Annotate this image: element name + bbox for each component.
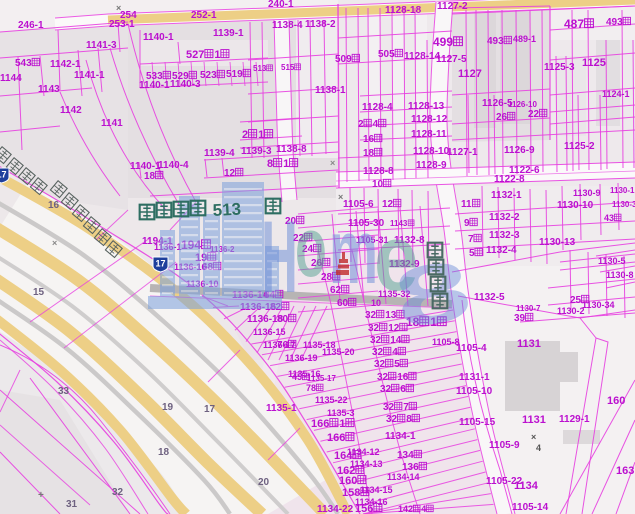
svg-text:1130-34: 1130-34 — [582, 300, 615, 310]
svg-text:1122-8: 1122-8 — [494, 174, 525, 185]
svg-text:1128-12: 1128-12 — [411, 114, 448, 125]
svg-text:1134-15: 1134-15 — [360, 485, 393, 495]
svg-text:7: 7 — [468, 234, 474, 245]
svg-text:1126-10: 1126-10 — [508, 100, 537, 109]
svg-text:1138-2: 1138-2 — [305, 19, 336, 30]
svg-text:1139-1: 1139-1 — [213, 28, 244, 39]
svg-text:39: 39 — [514, 313, 526, 324]
svg-text:32: 32 — [380, 384, 392, 395]
svg-text:26: 26 — [496, 112, 508, 123]
svg-text:25: 25 — [570, 295, 582, 306]
svg-text:1130-2: 1130-2 — [557, 306, 585, 316]
svg-text:1132-3: 1132-3 — [489, 230, 520, 241]
svg-text:1125-3: 1125-3 — [544, 62, 575, 73]
svg-text:1125-2: 1125-2 — [564, 141, 595, 152]
svg-text:1130-13: 1130-13 — [539, 237, 576, 248]
svg-text:1130-7: 1130-7 — [516, 304, 541, 313]
svg-text:1132-2: 1132-2 — [489, 212, 520, 223]
svg-text:487: 487 — [564, 17, 584, 31]
svg-text:31: 31 — [66, 499, 78, 510]
svg-text:513: 513 — [253, 64, 267, 73]
svg-text:1143: 1143 — [38, 84, 60, 95]
svg-text:19: 19 — [162, 402, 174, 413]
svg-text:1130-1: 1130-1 — [610, 186, 635, 195]
svg-text:1127-2: 1127-2 — [437, 1, 468, 12]
svg-text:1128-11: 1128-11 — [411, 129, 447, 140]
svg-text:1141-1: 1141-1 — [74, 70, 105, 81]
svg-text:1140-3: 1140-3 — [170, 79, 201, 90]
svg-text:32: 32 — [365, 310, 377, 321]
svg-text:1144: 1144 — [0, 73, 22, 84]
svg-text:1132-4: 1132-4 — [486, 245, 517, 256]
svg-text:499: 499 — [433, 35, 453, 49]
svg-text:523: 523 — [200, 70, 217, 81]
svg-text:527: 527 — [186, 49, 204, 61]
svg-text:1130-3: 1130-3 — [612, 200, 635, 209]
svg-text:163: 163 — [616, 465, 634, 477]
svg-text:32: 32 — [377, 372, 389, 383]
svg-text:253-1: 253-1 — [109, 19, 135, 30]
svg-text:1139-3: 1139-3 — [241, 146, 272, 157]
svg-text:1127-1: 1127-1 — [447, 147, 478, 158]
svg-text:16: 16 — [363, 134, 375, 145]
svg-text:45: 45 — [292, 372, 302, 382]
svg-text:9: 9 — [464, 218, 470, 229]
svg-text:4: 4 — [373, 119, 379, 130]
svg-text:5: 5 — [469, 248, 475, 259]
svg-text:18: 18 — [158, 447, 170, 458]
svg-text:1105-4: 1105-4 — [456, 343, 487, 354]
svg-text:1138-8: 1138-8 — [276, 144, 307, 155]
svg-text:18: 18 — [144, 171, 156, 182]
svg-text:252-1: 252-1 — [191, 10, 217, 21]
svg-text:32: 32 — [374, 359, 386, 370]
svg-text:1136-19: 1136-19 — [285, 353, 318, 363]
svg-text:1105-9: 1105-9 — [489, 440, 520, 451]
svg-text:1134-22: 1134-22 — [317, 504, 354, 514]
svg-text:17: 17 — [204, 404, 216, 415]
svg-text:17: 17 — [155, 258, 165, 268]
svg-text:246-1: 246-1 — [18, 20, 44, 31]
svg-text:1141: 1141 — [101, 118, 123, 129]
svg-text:1130-8: 1130-8 — [606, 270, 634, 280]
svg-text:1129-1: 1129-1 — [559, 414, 590, 425]
svg-text:80: 80 — [277, 314, 289, 325]
svg-text:160: 160 — [607, 395, 625, 407]
svg-text:1126-9: 1126-9 — [504, 145, 535, 156]
svg-text:1131: 1131 — [517, 338, 541, 350]
svg-text:1128-13: 1128-13 — [408, 101, 445, 112]
svg-text:509: 509 — [335, 54, 352, 65]
svg-text:18: 18 — [363, 148, 375, 159]
svg-text:1105-15: 1105-15 — [459, 417, 496, 428]
svg-text:543: 543 — [15, 58, 32, 69]
svg-text:1105-22: 1105-22 — [486, 476, 523, 487]
svg-text:1139-4: 1139-4 — [204, 148, 235, 159]
svg-text:1134-14: 1134-14 — [387, 472, 420, 482]
svg-text:14: 14 — [390, 335, 402, 346]
svg-text:1: 1 — [214, 49, 220, 61]
svg-text:489-1: 489-1 — [513, 34, 536, 44]
svg-text:33: 33 — [58, 386, 70, 397]
svg-text:o: o — [295, 200, 327, 294]
svg-text:134: 134 — [397, 450, 414, 461]
svg-text:32: 32 — [372, 347, 384, 358]
svg-text:20: 20 — [258, 477, 270, 488]
svg-text:1: 1 — [258, 129, 264, 141]
svg-text:515: 515 — [281, 63, 295, 72]
svg-text:1130-5: 1130-5 — [598, 256, 626, 266]
svg-text:43: 43 — [604, 213, 614, 223]
svg-text:1142: 1142 — [60, 105, 82, 116]
svg-text:1125: 1125 — [582, 57, 606, 69]
svg-text:m: m — [329, 201, 378, 304]
svg-text:×: × — [330, 158, 335, 168]
svg-text:1134-1: 1134-1 — [385, 431, 416, 442]
svg-text:505: 505 — [378, 49, 395, 60]
svg-text:1: 1 — [283, 158, 289, 170]
svg-text:8: 8 — [267, 158, 273, 170]
svg-text:4: 4 — [392, 347, 398, 358]
svg-text:1134-12: 1134-12 — [347, 447, 380, 457]
svg-text:1128-8: 1128-8 — [363, 166, 394, 177]
svg-text:15: 15 — [33, 287, 45, 298]
svg-text:1130-9: 1130-9 — [573, 188, 601, 198]
svg-text:32: 32 — [383, 402, 395, 413]
svg-text:4: 4 — [421, 504, 426, 514]
svg-text:32: 32 — [368, 323, 380, 334]
svg-text:1134-13: 1134-13 — [350, 459, 383, 469]
svg-text:1135-20: 1135-20 — [322, 347, 355, 357]
svg-text:7: 7 — [403, 402, 409, 413]
svg-text:1135-3: 1135-3 — [327, 408, 355, 418]
svg-text:4: 4 — [536, 443, 541, 453]
svg-text:1124-1: 1124-1 — [602, 89, 630, 99]
svg-text:1131-1: 1131-1 — [459, 372, 490, 383]
svg-text:11: 11 — [461, 199, 472, 210]
svg-text:76: 76 — [277, 340, 289, 351]
svg-text:32: 32 — [386, 414, 398, 425]
svg-text:10: 10 — [372, 179, 384, 190]
svg-text:32: 32 — [370, 335, 382, 346]
svg-text:160: 160 — [339, 475, 357, 487]
svg-text:1136-15: 1136-15 — [253, 327, 286, 337]
svg-text:5: 5 — [394, 359, 400, 370]
svg-text:1141-3: 1141-3 — [86, 40, 117, 51]
svg-text:2: 2 — [242, 129, 248, 141]
svg-text:1140-4: 1140-4 — [158, 160, 189, 171]
svg-text:12: 12 — [224, 168, 236, 179]
svg-text:32: 32 — [112, 487, 124, 498]
svg-text:1131: 1131 — [522, 414, 546, 426]
svg-text:17: 17 — [0, 169, 7, 179]
svg-text:×: × — [52, 238, 57, 248]
svg-text:166: 166 — [327, 432, 345, 444]
svg-text:×: × — [116, 3, 121, 13]
svg-text:22: 22 — [528, 109, 540, 120]
svg-text:H: H — [261, 201, 298, 315]
svg-text:1105-10: 1105-10 — [456, 386, 493, 397]
svg-text:166: 166 — [311, 418, 329, 430]
svg-text:1135-17: 1135-17 — [307, 374, 336, 383]
svg-text:1138-4: 1138-4 — [272, 20, 303, 31]
svg-text:142: 142 — [398, 504, 413, 514]
svg-text:1140-1: 1140-1 — [143, 32, 174, 43]
svg-text:493: 493 — [487, 36, 504, 47]
svg-text:1135-1: 1135-1 — [266, 403, 297, 414]
svg-text:1128-9: 1128-9 — [416, 160, 447, 171]
svg-text:513: 513 — [212, 200, 241, 220]
svg-text:16: 16 — [48, 200, 60, 211]
svg-text:6: 6 — [400, 384, 406, 395]
svg-text:1132-1: 1132-1 — [491, 190, 522, 201]
svg-text:1140-1: 1140-1 — [139, 80, 170, 91]
svg-text:1105-14: 1105-14 — [512, 502, 549, 513]
svg-text:1128-18: 1128-18 — [385, 5, 422, 16]
svg-text:8: 8 — [406, 414, 412, 425]
svg-text:1134-16: 1134-16 — [355, 497, 388, 507]
svg-text:1130-10: 1130-10 — [557, 200, 594, 211]
svg-text:1132-5: 1132-5 — [474, 292, 505, 303]
svg-text:+: + — [38, 490, 44, 501]
svg-text:1: 1 — [339, 418, 345, 430]
svg-text:12: 12 — [388, 323, 400, 334]
svg-text:240-1: 240-1 — [268, 0, 294, 10]
svg-text:1135-22: 1135-22 — [315, 395, 348, 405]
svg-text:1128-10: 1128-10 — [413, 146, 450, 157]
svg-text:1128-4: 1128-4 — [362, 102, 393, 113]
svg-text:519: 519 — [226, 69, 243, 80]
svg-text:78: 78 — [306, 383, 316, 393]
svg-text:×: × — [531, 432, 536, 442]
svg-text:1138-1: 1138-1 — [315, 85, 346, 96]
svg-text:1127: 1127 — [458, 68, 482, 80]
svg-text:13: 13 — [385, 310, 397, 321]
svg-text:16: 16 — [397, 372, 409, 383]
svg-text:493: 493 — [606, 17, 623, 28]
svg-text:2: 2 — [358, 119, 364, 130]
svg-text:1142-1: 1142-1 — [50, 59, 81, 70]
svg-text:1127-5: 1127-5 — [436, 54, 467, 65]
